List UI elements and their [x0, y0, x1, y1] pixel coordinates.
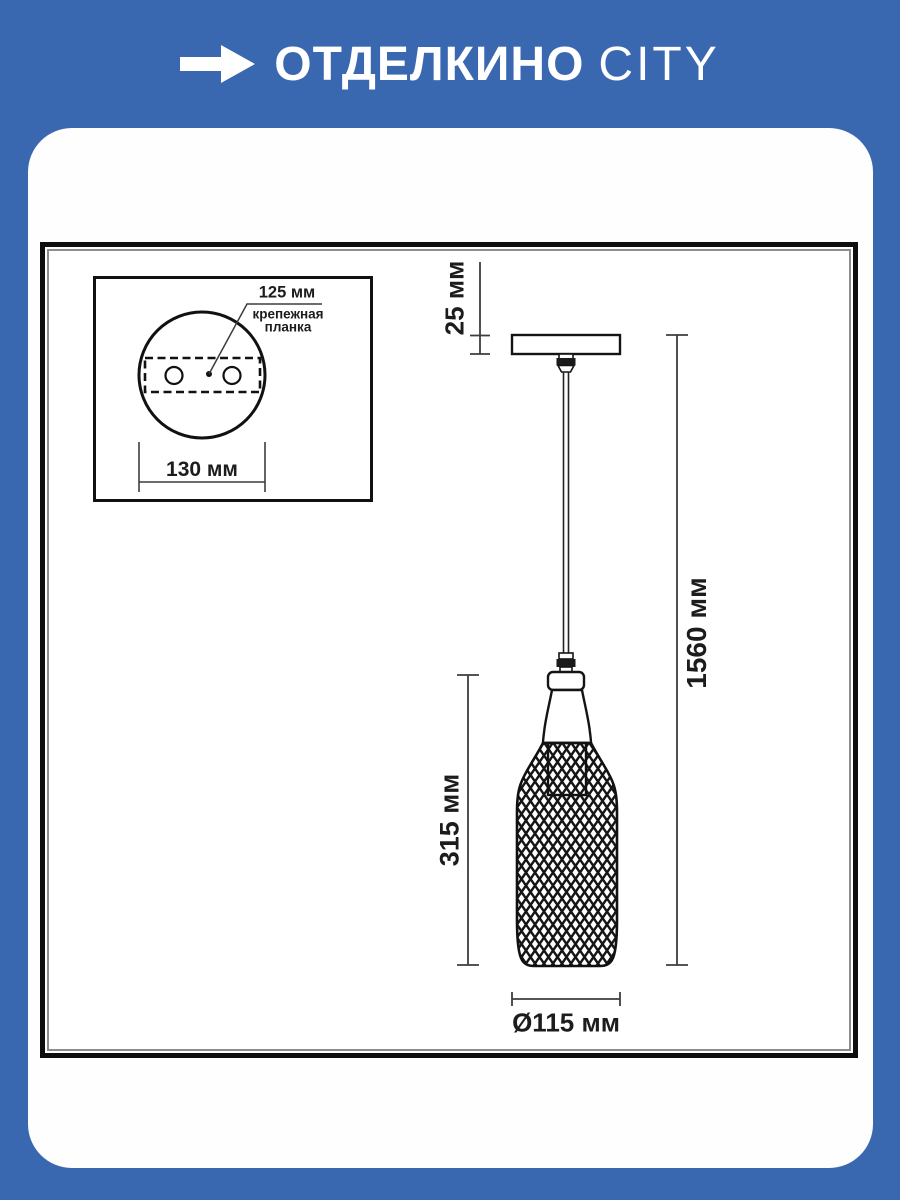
label-shade-height: 315 мм [435, 774, 466, 867]
ceiling-plate [512, 335, 620, 354]
dim-line-shade-diameter [512, 992, 620, 1006]
cord-grip-bottom [557, 653, 576, 672]
suspension-cord [564, 372, 569, 656]
dim-line-canopy-height [470, 262, 490, 354]
cord-grip-top [557, 354, 576, 372]
mesh-shade-body [517, 743, 617, 966]
brand-header: ОТДЕЛКИНО CITY [0, 0, 900, 128]
label-mounting-bar-2: планка [265, 320, 312, 335]
bottle-neck [543, 690, 591, 743]
arrow-right-icon [180, 43, 256, 85]
label-shade-diameter: Ø115 мм [512, 1008, 620, 1039]
label-hole-pitch: 125 мм [259, 284, 316, 303]
label-plate-width: 130 мм [166, 458, 238, 482]
product-dimension-image: ОТДЕЛКИНО CITY [0, 0, 900, 1200]
label-overall-height: 1560 мм [681, 577, 713, 689]
socket-cap [548, 672, 584, 690]
label-canopy-height: 25 мм [440, 261, 471, 336]
brand-name-light: CITY [598, 37, 719, 92]
brand-name-bold: ОТДЕЛКИНО [274, 37, 584, 92]
